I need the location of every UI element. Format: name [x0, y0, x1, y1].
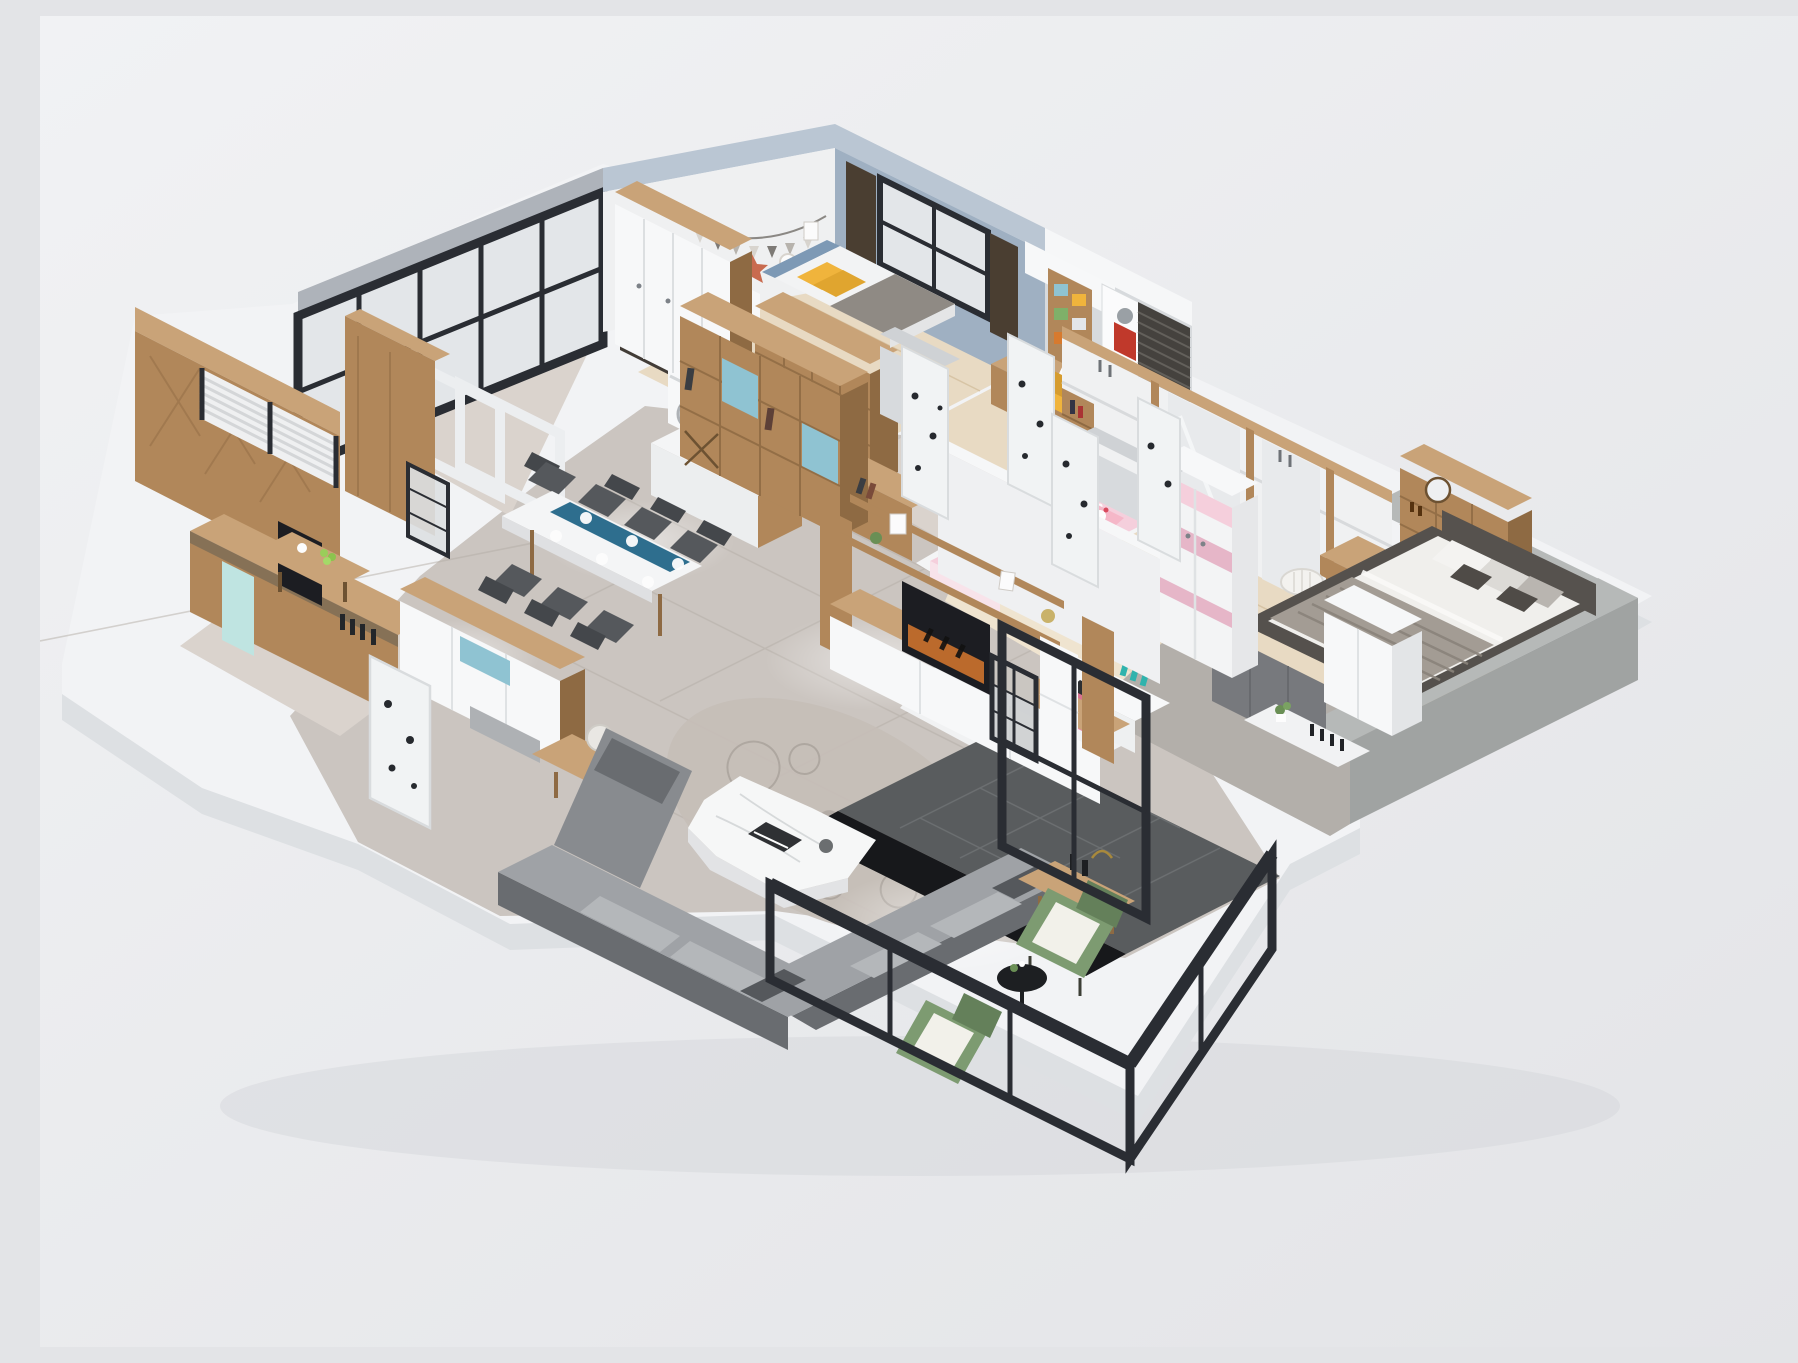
curtain-right — [990, 233, 1018, 346]
mint-accent-panel — [222, 561, 254, 656]
hall-door-2 — [1008, 334, 1054, 507]
vase — [1041, 609, 1055, 623]
wall-frame — [804, 222, 818, 240]
entry-door — [370, 656, 430, 828]
hall-door-3 — [1052, 414, 1098, 587]
vanity-mirror — [1426, 478, 1450, 502]
hall-door-1 — [902, 346, 948, 519]
hall-door-4 — [1138, 398, 1180, 561]
apartment-render-figure: 3D isometric cutaway rendering of a furn… — [40, 16, 1798, 1347]
apartment-floorplan-3d — [40, 16, 1798, 1347]
media-unit-end-panel — [1082, 616, 1114, 764]
